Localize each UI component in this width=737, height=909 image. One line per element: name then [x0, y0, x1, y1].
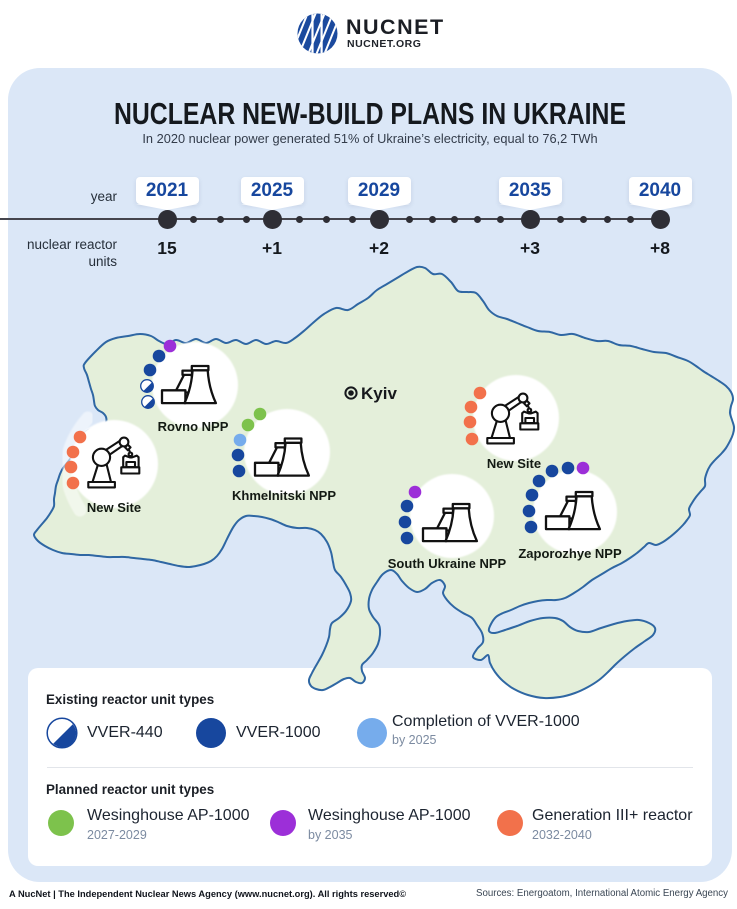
svg-text:New Site: New Site — [487, 456, 541, 471]
svg-text:South Ukraine NPP: South Ukraine NPP — [388, 556, 507, 571]
svg-text:New Site: New Site — [87, 500, 141, 515]
svg-text:Khmelnitski NPP: Khmelnitski NPP — [232, 488, 336, 503]
svg-text:Zaporozhye NPP: Zaporozhye NPP — [518, 546, 622, 561]
svg-text:Kyiv: Kyiv — [361, 384, 397, 403]
svg-text:Rovno NPP: Rovno NPP — [158, 419, 229, 434]
